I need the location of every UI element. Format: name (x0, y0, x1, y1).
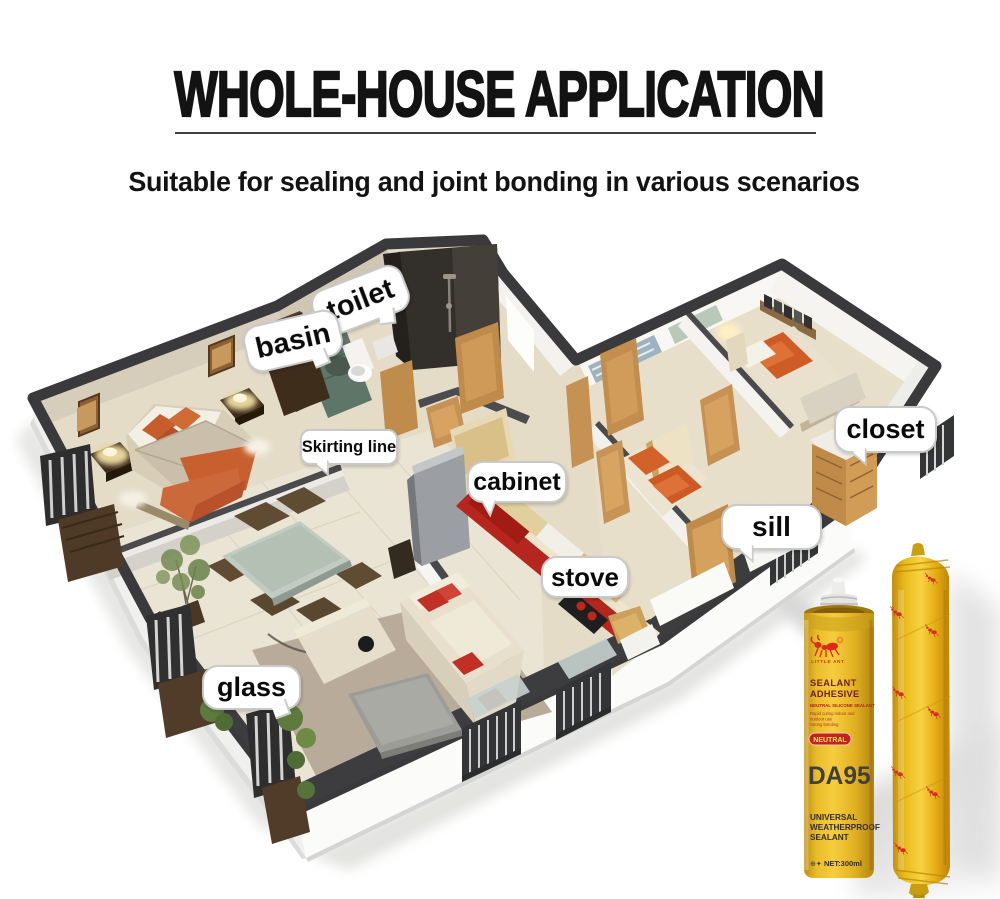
svg-text:Rapid curing indoor and: Rapid curing indoor and (810, 711, 855, 716)
svg-text:Strong bonding: Strong bonding (810, 722, 839, 727)
svg-text:LITTLE ANT: LITTLE ANT (811, 659, 845, 664)
svg-text:NEUTRAL SILICONE SEALANT: NEUTRAL SILICONE SEALANT (810, 703, 875, 708)
svg-text:UNIVERSAL: UNIVERSAL (810, 813, 857, 822)
svg-text:NET:300ml: NET:300ml (824, 859, 862, 868)
svg-text:SEALANT: SEALANT (810, 678, 857, 688)
svg-text:NEUTRAL: NEUTRAL (813, 737, 847, 744)
svg-text:WEATHERPROOF: WEATHERPROOF (810, 823, 880, 832)
svg-text:DA95: DA95 (808, 763, 871, 790)
svg-text:ADHESIVE: ADHESIVE (810, 689, 859, 699)
svg-text:SEALANT: SEALANT (810, 833, 849, 842)
svg-text:outdoor use: outdoor use (810, 717, 833, 722)
svg-text:⊕✦: ⊕✦ (810, 860, 822, 868)
